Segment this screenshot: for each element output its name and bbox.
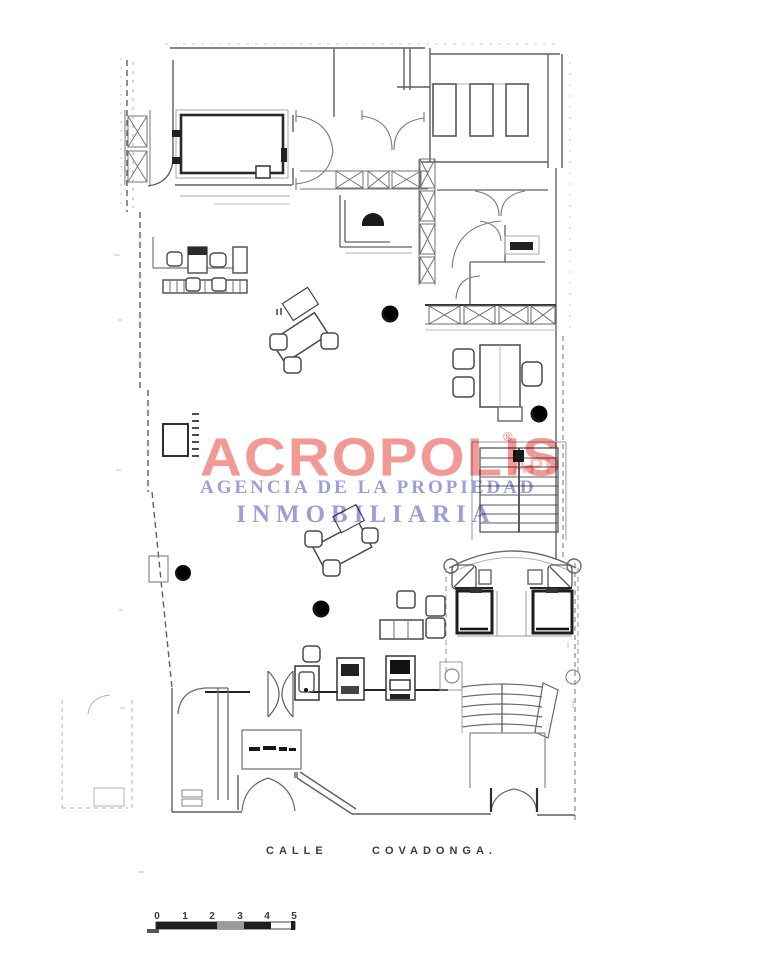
illegible-vertical-note — [192, 413, 199, 457]
lobby-curved-wall — [444, 551, 581, 676]
scale-number: 3 — [237, 911, 243, 922]
dark-chair — [362, 213, 384, 226]
partition-x-top — [300, 171, 428, 189]
security-fixtures — [205, 656, 462, 700]
left-column-strip — [125, 110, 150, 185]
waiting-area-furniture — [380, 591, 445, 639]
watermark-registered-mark: ® — [503, 429, 513, 444]
top-right-room — [421, 54, 548, 168]
scale-bar: 0 1 2 3 4 5 — [147, 911, 297, 933]
dark-shelf — [510, 242, 533, 250]
lower-left-walls — [178, 688, 228, 806]
scanned-floor-plan-page: 0 1 2 3 4 5 ACROPOLIS ® API AGENCIA DE L… — [0, 0, 781, 960]
scale-number: 5 — [291, 911, 297, 922]
elevator-left — [452, 565, 493, 633]
conference-table — [172, 110, 288, 178]
watermark-inmobiliaria-line: INMOBILIARIA — [200, 501, 532, 529]
elevator-right — [457, 565, 572, 636]
address-label-box — [242, 730, 301, 769]
office-top-middle — [340, 195, 412, 253]
scale-number: 1 — [182, 911, 188, 922]
scale-number: 4 — [264, 911, 270, 922]
rooms-right-middle — [437, 190, 548, 305]
street-label-covadonga: COVADONGA. — [372, 845, 497, 857]
reception-cluster — [153, 237, 247, 293]
entrance-door-arches — [242, 778, 537, 812]
desk-right-middle — [453, 345, 542, 421]
entrance-fan-steps — [445, 669, 580, 788]
partition-x-middle — [425, 305, 556, 330]
column-with-note — [163, 413, 199, 457]
scale-number: 2 — [209, 911, 215, 922]
entrance-ramp — [535, 683, 558, 738]
desk-cluster-angled-1 — [257, 287, 338, 373]
vestibule-swing-door — [268, 671, 293, 717]
watermark-agency-line: AGENCIA DE LA PROPIEDAD — [200, 477, 532, 499]
watermark-api-mark: API — [512, 455, 553, 479]
scale-number: 0 — [154, 911, 160, 922]
window-rects — [433, 84, 528, 136]
street-label-calle: CALLE — [266, 845, 328, 857]
adjacent-building-outline — [62, 695, 132, 812]
